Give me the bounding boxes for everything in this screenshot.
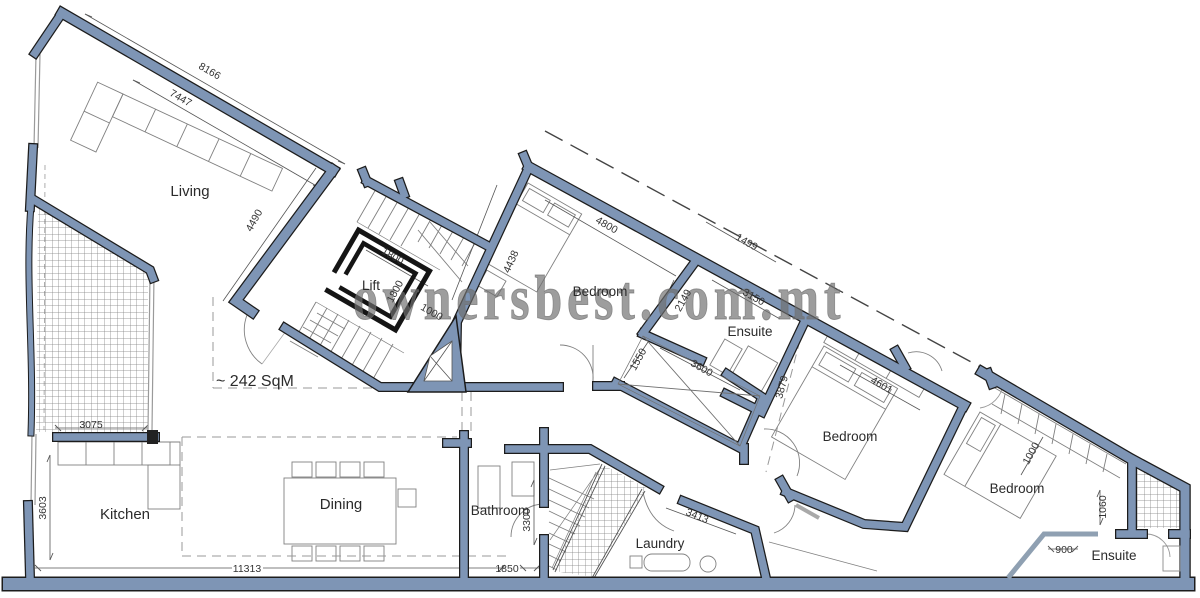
svg-text:Ensuite: Ensuite: [727, 324, 772, 339]
svg-text:Living: Living: [170, 183, 209, 200]
svg-text:900: 900: [1055, 544, 1073, 556]
svg-text:Laundry: Laundry: [636, 536, 685, 551]
svg-text:~ 242 SqM: ~ 242 SqM: [216, 373, 294, 390]
svg-text:Dining: Dining: [320, 496, 363, 513]
svg-text:Lift: Lift: [362, 278, 380, 293]
svg-text:1850: 1850: [495, 563, 519, 575]
svg-text:Bedroom: Bedroom: [823, 429, 878, 444]
svg-text:3603: 3603: [37, 496, 49, 520]
svg-text:Bedroom: Bedroom: [573, 284, 628, 299]
svg-text:11313: 11313: [233, 563, 262, 575]
svg-text:Bedroom: Bedroom: [990, 481, 1045, 496]
svg-text:Kitchen: Kitchen: [100, 506, 150, 523]
svg-text:3300: 3300: [521, 508, 533, 532]
svg-text:3075: 3075: [79, 419, 103, 431]
svg-text:1060: 1060: [1097, 495, 1109, 519]
svg-text:Ensuite: Ensuite: [1091, 548, 1136, 563]
